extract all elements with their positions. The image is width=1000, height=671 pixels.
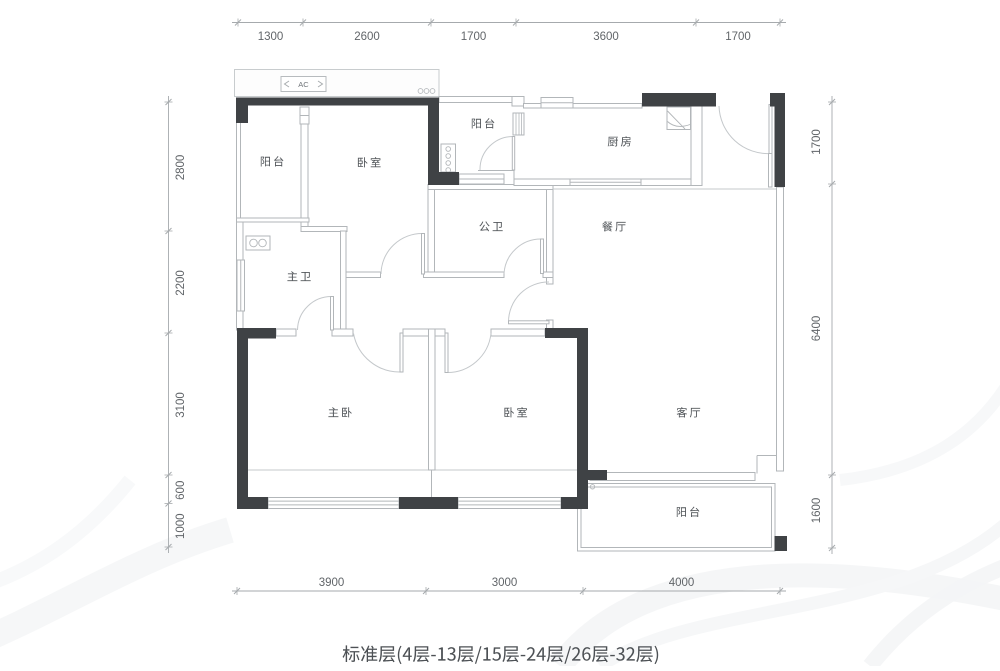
svg-text:AC: AC (298, 80, 309, 89)
svg-text:3900: 3900 (319, 577, 345, 589)
svg-text:3600: 3600 (593, 31, 619, 43)
svg-text:3100: 3100 (175, 392, 187, 418)
svg-text:2600: 2600 (354, 31, 380, 43)
svg-text:1700: 1700 (725, 31, 751, 43)
svg-text:6400: 6400 (811, 316, 823, 342)
svg-text:2800: 2800 (175, 155, 187, 181)
svg-text:1000: 1000 (175, 513, 187, 539)
svg-text:1700: 1700 (461, 31, 487, 43)
svg-text:1700: 1700 (811, 129, 823, 155)
svg-text:600: 600 (175, 481, 187, 500)
svg-text:2200: 2200 (175, 270, 187, 296)
svg-text:3000: 3000 (492, 577, 518, 589)
svg-text:1300: 1300 (258, 31, 284, 43)
svg-text:1600: 1600 (811, 498, 823, 524)
svg-text:4000: 4000 (669, 577, 695, 589)
